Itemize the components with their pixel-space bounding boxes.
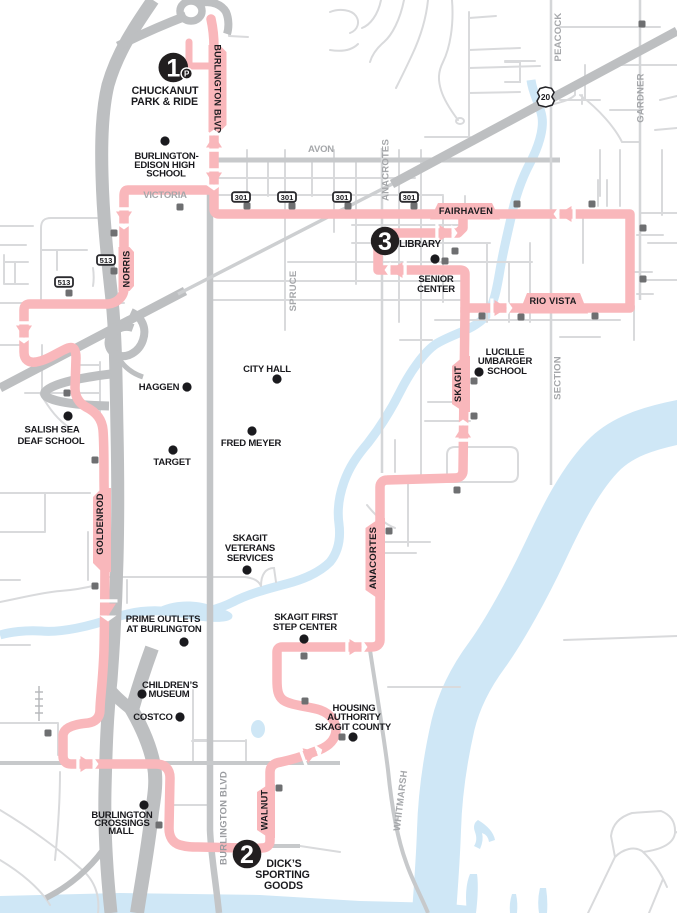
- svg-text:BURLINGTON BLVD: BURLINGTON BLVD: [212, 44, 222, 133]
- svg-text:ANACORTES: ANACORTES: [368, 526, 379, 589]
- svg-text:CENTER: CENTER: [417, 284, 455, 295]
- svg-text:301: 301: [281, 193, 294, 202]
- svg-text:FAIRHAVEN: FAIRHAVEN: [439, 206, 493, 216]
- svg-text:SECTION: SECTION: [553, 356, 564, 400]
- svg-text:VICTORIA: VICTORIA: [143, 190, 187, 201]
- svg-text:513: 513: [100, 256, 113, 265]
- svg-text:MUSEUM: MUSEUM: [148, 689, 189, 700]
- svg-text:20: 20: [541, 92, 551, 102]
- svg-text:GOLDENROD: GOLDENROD: [95, 493, 105, 555]
- svg-text:SCHOOL: SCHOOL: [487, 366, 527, 377]
- svg-text:SPRUCE: SPRUCE: [288, 271, 299, 312]
- svg-text:301: 301: [235, 193, 248, 202]
- svg-text:NORRIS: NORRIS: [122, 251, 132, 288]
- svg-text:P: P: [184, 70, 190, 79]
- svg-text:LIBRARY: LIBRARY: [399, 239, 441, 250]
- svg-text:PEACOCK: PEACOCK: [553, 13, 564, 62]
- svg-text:CITY HALL: CITY HALL: [243, 364, 291, 375]
- svg-text:PARK & RIDE: PARK & RIDE: [131, 96, 198, 108]
- svg-text:DEAF SCHOOL: DEAF SCHOOL: [18, 436, 85, 447]
- svg-text:WALNUT: WALNUT: [260, 790, 270, 831]
- svg-text:GOODS: GOODS: [264, 880, 303, 892]
- svg-text:MALL: MALL: [108, 826, 134, 837]
- svg-text:301: 301: [336, 193, 349, 202]
- svg-text:SKAGIT COUNTY: SKAGIT COUNTY: [315, 722, 392, 733]
- svg-text:FRED MEYER: FRED MEYER: [221, 438, 282, 449]
- svg-text:ANACROTES: ANACROTES: [381, 139, 392, 201]
- svg-text:GARDNER: GARDNER: [636, 73, 647, 122]
- svg-text:2: 2: [240, 841, 254, 869]
- svg-text:SERVICES: SERVICES: [227, 553, 273, 564]
- svg-text:AT BURLINGTON: AT BURLINGTON: [126, 624, 201, 635]
- svg-text:3: 3: [378, 228, 392, 256]
- svg-text:SKAGIT: SKAGIT: [453, 366, 463, 402]
- svg-text:HAGGEN: HAGGEN: [139, 382, 180, 393]
- svg-text:TARGET: TARGET: [153, 457, 191, 468]
- svg-text:STEP CENTER: STEP CENTER: [273, 622, 337, 633]
- svg-text:RIO VISTA: RIO VISTA: [529, 296, 576, 306]
- svg-text:SALISH SEA: SALISH SEA: [24, 425, 79, 436]
- svg-text:BURLINGTON BLVD: BURLINGTON BLVD: [219, 771, 230, 865]
- svg-text:COSTCO: COSTCO: [133, 712, 172, 723]
- svg-text:1: 1: [166, 55, 180, 83]
- svg-text:301: 301: [403, 193, 416, 202]
- svg-text:AVON: AVON: [308, 144, 334, 155]
- svg-text:513: 513: [58, 278, 71, 287]
- svg-text:SCHOOL: SCHOOL: [146, 169, 186, 180]
